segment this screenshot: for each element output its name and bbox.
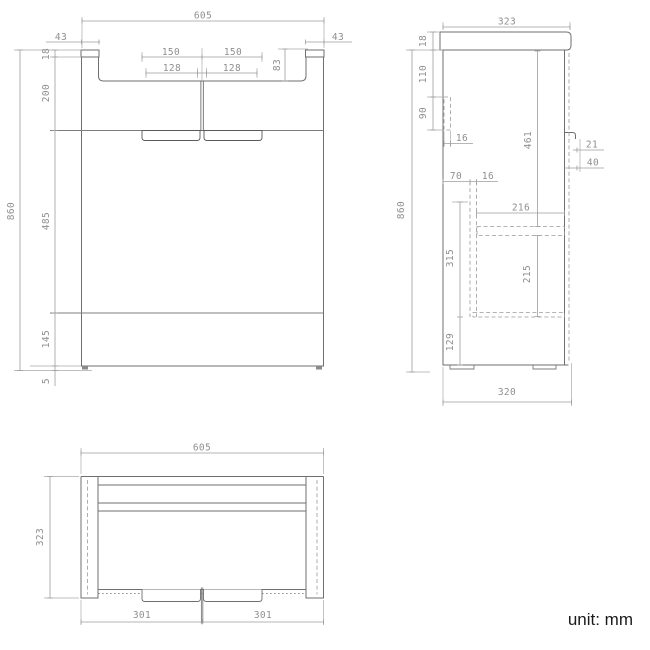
top-dim-door-left: 301 (133, 610, 151, 621)
side-dim-total-height: 860 (396, 201, 407, 219)
front-cap-left (81, 50, 99, 57)
front-dimension-lines (17, 19, 352, 387)
side-handle-profile (565, 133, 576, 140)
side-dim-interior-height: 461 (523, 131, 534, 149)
side-countertop (440, 32, 571, 50)
technical-drawing-page: 605 43 43 150 150 128 128 83 18 200 485 … (0, 0, 650, 650)
vanity-dimension-drawing: 605 43 43 150 150 128 128 83 18 200 485 … (0, 0, 650, 650)
top-handle-recess-right (204, 590, 263, 602)
front-dim-total-width: 605 (194, 11, 212, 22)
front-handle-recess-right (204, 131, 262, 141)
side-dimension-lines (409, 25, 604, 405)
side-dim-back-gap: 70 (450, 171, 462, 182)
side-dim-bottom-depth: 320 (498, 387, 516, 398)
side-dim-cap-thickness: 18 (418, 35, 429, 47)
front-foot-left (82, 366, 88, 370)
side-partition-dashed (470, 182, 477, 318)
side-wall-rail-dashed (444, 97, 451, 130)
side-dim-top-depth: 323 (498, 17, 516, 28)
front-view: 605 43 43 150 150 128 128 83 18 200 485 … (6, 11, 352, 387)
side-dim-drawer-zone: 315 (445, 249, 456, 267)
top-centre-gap (201, 588, 202, 624)
side-dim-rail-thickness: 16 (456, 133, 468, 144)
top-dim-total-depth: 323 (35, 528, 46, 546)
side-feet (450, 365, 556, 369)
front-dim-lower-section: 145 (41, 330, 52, 348)
side-dim-handle-depth: 40 (587, 158, 599, 169)
front-dim-handle-span-left: 150 (162, 47, 180, 58)
front-handle-recess-left (142, 131, 200, 141)
top-handle-recess-left (142, 590, 201, 602)
side-dim-shelf-spacing: 215 (522, 265, 533, 283)
front-door-gap (201, 81, 203, 131)
front-dim-foot-height: 5 (41, 378, 52, 384)
front-dim-middle-section: 485 (41, 212, 52, 230)
front-dim-handle-span-right: 150 (224, 47, 242, 58)
unit-label: unit: mm (568, 610, 633, 629)
front-dim-cap-right: 43 (332, 32, 344, 43)
top-view: 605 323 301 301 (35, 443, 324, 626)
top-dim-total-width: 605 (193, 443, 211, 454)
front-cap-right (306, 50, 325, 57)
front-dim-cap-left: 43 (55, 32, 67, 43)
side-dim-shelf-depth: 216 (512, 203, 530, 214)
front-dim-handle-inner-left: 128 (163, 63, 181, 74)
top-side-panels-dashed (88, 480, 318, 595)
front-foot-right (316, 366, 322, 370)
top-outline (81, 477, 324, 599)
side-dim-bottom-zone: 129 (445, 333, 456, 351)
side-body-outline (443, 50, 569, 365)
top-dim-door-right: 301 (254, 610, 272, 621)
side-shelf-upper-dashed (477, 227, 565, 236)
front-dim-upper-section: 200 (41, 84, 52, 102)
side-dim-offset-top: 110 (418, 65, 429, 83)
front-dim-total-height: 860 (6, 202, 17, 220)
front-dim-handle-inner-right: 128 (223, 63, 241, 74)
front-dim-recess-height: 83 (272, 59, 283, 71)
side-dim-handle-offset: 21 (586, 140, 598, 151)
side-shelf-lower-dashed (473, 313, 565, 318)
front-dim-cap-thickness: 18 (41, 48, 52, 60)
side-extension-lines (406, 22, 580, 406)
side-view: 323 18 110 90 16 70 16 216 461 315 215 1… (396, 17, 604, 407)
side-dim-panel-thickness: 16 (482, 171, 494, 182)
side-dim-rail-height: 90 (418, 107, 429, 119)
front-horizontal-lines (50, 131, 324, 314)
